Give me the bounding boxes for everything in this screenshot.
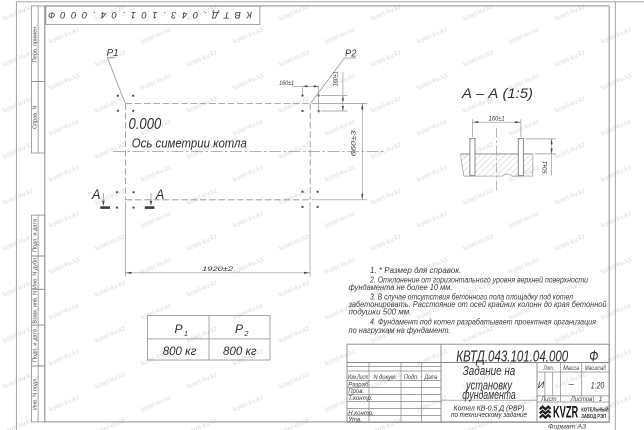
svg-text:Пров.: Пров. xyxy=(348,389,364,395)
svg-text:Лист: Лист xyxy=(540,397,556,403)
svg-text:Подп.: Подп. xyxy=(404,375,419,381)
svg-text:Взам. инв. N: Взам. инв. N xyxy=(33,291,39,324)
svg-text:фундамента: фундамента xyxy=(462,388,516,402)
svg-text:Изм.Лист: Изм.Лист xyxy=(348,375,369,381)
svg-text:50±1: 50±1 xyxy=(542,160,549,173)
svg-text:Масштаб: Масштаб xyxy=(585,366,606,372)
svg-text:160±1: 160±1 xyxy=(489,115,505,122)
svg-text:И: И xyxy=(538,380,545,390)
svg-text:1: 1 xyxy=(184,331,188,338)
svg-text:P1: P1 xyxy=(107,47,119,59)
svg-text:А: А xyxy=(91,186,100,202)
svg-text:по техническому задание: по техническому задание xyxy=(451,411,527,419)
svg-text:Лит.: Лит. xyxy=(543,366,554,372)
svg-text:Ось симетрии котла: Ось симетрии котла xyxy=(132,136,247,151)
svg-text:Справ. N: Справ. N xyxy=(33,106,39,129)
svg-text:1:20: 1:20 xyxy=(591,380,605,390)
svg-text:1. * Размер для справок.: 1. * Размер для справок. xyxy=(370,266,461,275)
svg-text:160±1: 160±1 xyxy=(279,80,294,87)
svg-text:2: 2 xyxy=(244,331,249,338)
svg-text:Утв.: Утв. xyxy=(347,417,362,423)
svg-text:–: – xyxy=(568,379,575,389)
svg-text:Перв. примен.: Перв. примен. xyxy=(33,25,39,63)
svg-text:Ф: Ф xyxy=(48,9,55,20)
svg-text:Дата: Дата xyxy=(424,375,438,381)
svg-text:Формат А3: Формат А3 xyxy=(548,424,586,430)
svg-text:160±1: 160±1 xyxy=(333,71,340,86)
svg-text:Подп. и дата: Подп. и дата xyxy=(33,328,39,362)
svg-text:P: P xyxy=(175,322,183,336)
svg-text:1: 1 xyxy=(599,397,602,403)
svg-text:Инв. N дубл.: Инв. N дубл. xyxy=(33,256,39,289)
svg-text:подушки 500 мм.: подушки 500 мм. xyxy=(349,308,412,317)
svg-text:А: А xyxy=(155,186,164,202)
svg-text:Ф: Ф xyxy=(589,349,598,366)
svg-text:Н.контр.: Н.контр. xyxy=(348,411,373,417)
svg-text:1920±2: 1920±2 xyxy=(202,266,233,273)
svg-text:KVZR: KVZR xyxy=(553,404,578,422)
svg-text:0.000: 0.000 xyxy=(129,116,162,133)
svg-text:Задание на: Задание на xyxy=(463,364,516,378)
svg-text:660±3: 660±3 xyxy=(350,130,357,156)
svg-text:N докум.: N докум. xyxy=(374,375,397,381)
svg-text:Масса: Масса xyxy=(563,366,580,372)
svg-text:Листов: Листов xyxy=(570,397,593,403)
svg-text:800 кг: 800 кг xyxy=(163,346,197,358)
svg-text:Разраб.: Разраб. xyxy=(348,382,370,388)
svg-text:по нагрузкам на фундамент.: по нагрузкам на фундамент. xyxy=(349,326,451,335)
svg-text:P: P xyxy=(235,322,243,336)
svg-text:800 кг: 800 кг xyxy=(223,346,257,358)
svg-text:ЗАВОД РЭП: ЗАВОД РЭП xyxy=(581,414,606,420)
svg-text:Т.контр.: Т.контр. xyxy=(348,396,372,402)
svg-text:Подп. и дата: Подп. и дата xyxy=(33,218,39,252)
svg-text:КОТЕЛЬНЫЙ: КОТЕЛЬНЫЙ xyxy=(581,406,608,414)
svg-text:Инв. N подл.: Инв. N подл. xyxy=(33,377,39,410)
svg-text:P2: P2 xyxy=(345,47,357,59)
svg-text:А – А (1:5): А – А (1:5) xyxy=(461,85,533,101)
svg-text:фундамента не более 10 мм.: фундамента не более 10 мм. xyxy=(349,283,453,292)
